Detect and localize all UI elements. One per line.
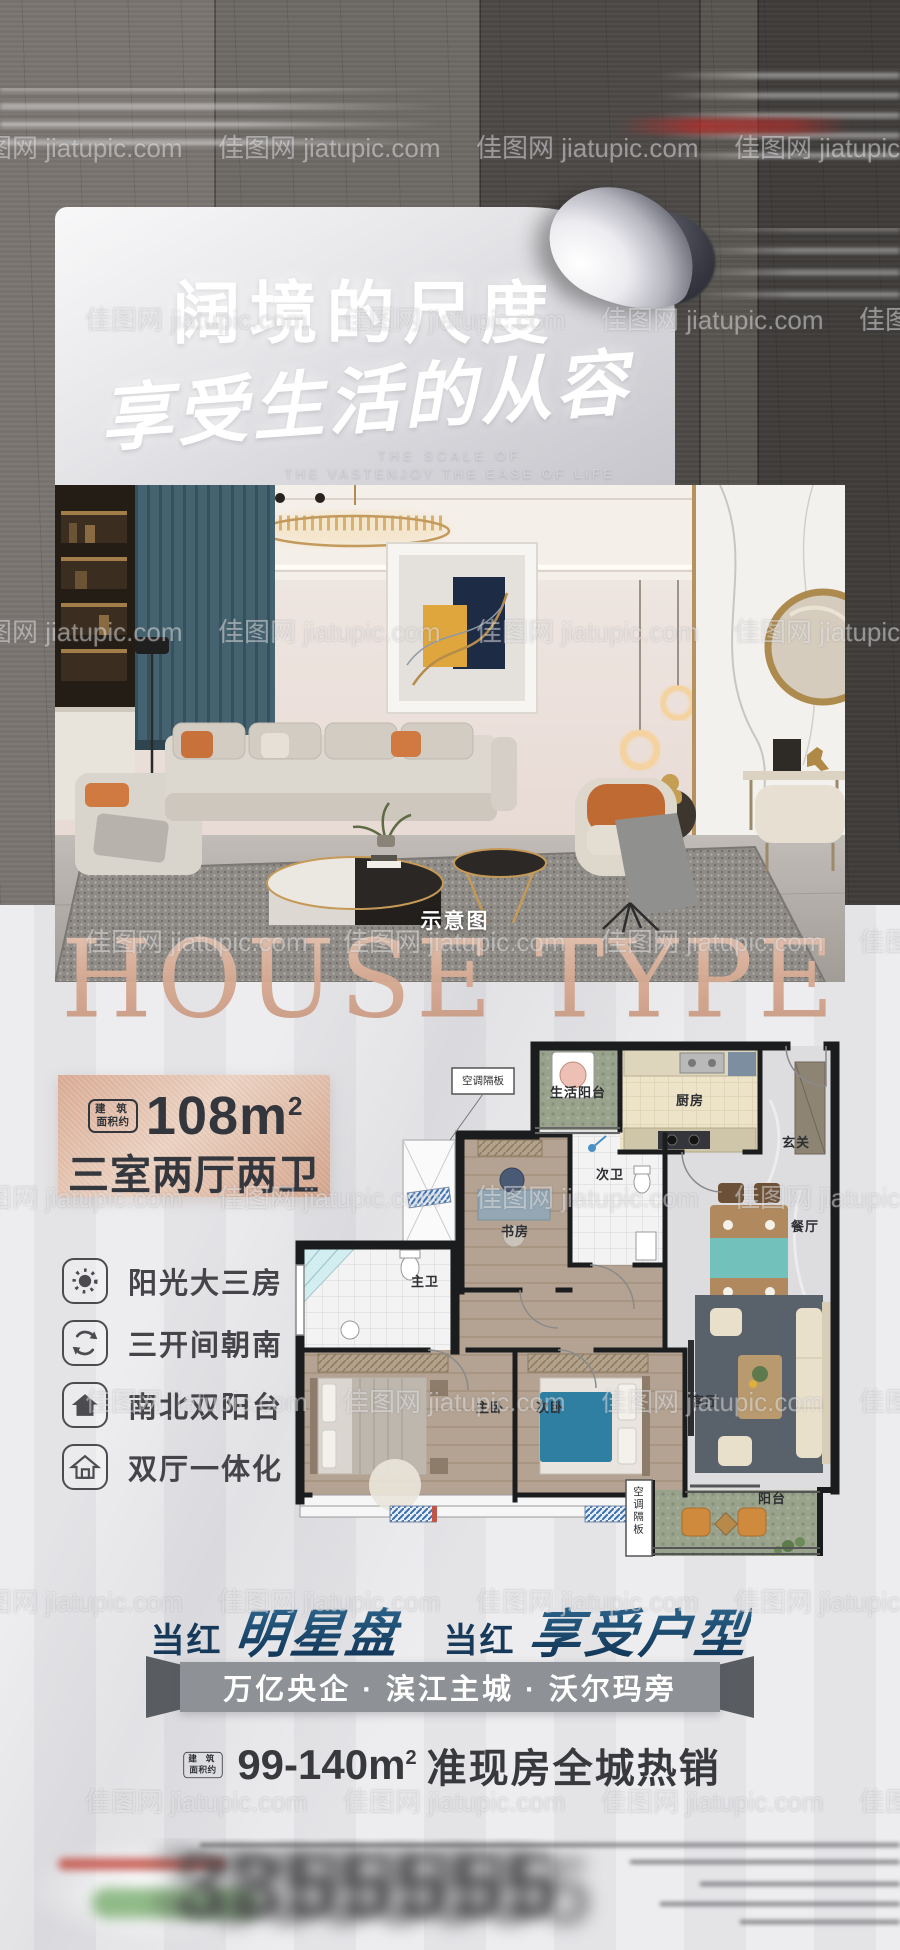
area-tag-line1: 建 筑	[95, 1103, 131, 1116]
english-subtitle: THE SCALE OF THE VASTENJOY THE EASE OF L…	[55, 449, 845, 481]
footer-streak	[200, 1843, 900, 1847]
footer-streak	[740, 1920, 900, 1924]
sales-tag-box: 建 筑 面积约	[184, 1752, 223, 1778]
english-subtitle-line1: THE SCALE OF	[55, 449, 845, 463]
feature-row-orientation: 三开间朝南	[62, 1320, 302, 1366]
feature-row-double-hall: 双厅一体化	[62, 1444, 302, 1490]
feature-label: 阳光大三房	[128, 1260, 283, 1302]
slogan-script-2: 享受户型	[526, 1592, 754, 1667]
room-label-ac-top: 空调隔板	[452, 1073, 514, 1088]
sun-icon	[62, 1258, 108, 1304]
footer-phone-number: 3355555	[175, 1838, 561, 1940]
footer-streak	[630, 1860, 900, 1864]
house-type-heading: HOUSE TYPE	[30, 916, 870, 1043]
room-label-study: 书房	[485, 1221, 545, 1240]
room-label-life-balcony: 生活阳台	[536, 1082, 620, 1101]
sales-tag-line2: 面积约	[189, 1765, 218, 1776]
room-label-second: 次卧	[520, 1397, 580, 1416]
floor-plan-drawing	[290, 1040, 840, 1560]
area-value: 108m2	[146, 1089, 304, 1143]
area-tag-line2: 面积约	[95, 1116, 131, 1129]
slogan-script-1: 明星盘	[233, 1592, 406, 1667]
sales-line: 建 筑 面积约 99-140m2 准现房全城热销	[0, 1736, 900, 1794]
room-label-ac-bottom: 空调隔板	[631, 1486, 646, 1552]
footer-streak	[700, 1882, 900, 1886]
feature-row-sunlight: 阳光大三房	[62, 1258, 302, 1304]
ribbon-banner: 万亿央企 · 滨江主城 · 沃尔玛旁	[180, 1662, 720, 1712]
english-subtitle-line2: THE VASTENJOY THE EASE OF LIFE	[55, 466, 845, 481]
blurred-footer: 3355555	[0, 1838, 900, 1950]
room-label-bath1: 主卫	[395, 1271, 455, 1290]
room-label-entry: 玄关	[768, 1132, 824, 1151]
room-label-living: 客厅	[675, 1391, 735, 1410]
house-outline-icon	[62, 1444, 108, 1490]
sales-tag-line1: 建 筑	[189, 1754, 218, 1765]
room-label-balcony: 阳台	[742, 1488, 802, 1507]
room-label-master: 主卧	[460, 1397, 520, 1416]
refresh-icon	[62, 1320, 108, 1366]
feature-row-balconies: 南北双阳台	[62, 1382, 302, 1428]
slogan-prefix-1: 当红	[150, 1613, 222, 1662]
feature-label: 三开间朝南	[128, 1322, 283, 1364]
house-filled-icon	[62, 1382, 108, 1428]
area-tag-box: 建 筑 面积约	[88, 1099, 138, 1133]
sales-range: 99-140m2	[237, 1741, 416, 1789]
slogan-prefix-2: 当红	[444, 1613, 516, 1662]
feature-label: 南北双阳台	[128, 1384, 283, 1426]
red-streak	[618, 118, 850, 134]
footer-streak	[660, 1902, 900, 1906]
floor-plan: 空调隔板 生活阳台 厨房 玄关 次卫 书房 餐厅 主卫 主卧 次卧 客厅 空调隔…	[290, 1040, 840, 1560]
room-label-bath2: 次卫	[580, 1164, 640, 1183]
feature-label: 双厅一体化	[128, 1446, 283, 1488]
room-label-dining: 餐厅	[775, 1216, 835, 1235]
sales-text: 准现房全城热销	[427, 1736, 721, 1794]
real-estate-poster: 阔境的尺度 享受生活的从容 THE SCALE OF THE VASTENJOY…	[0, 0, 900, 1950]
slogan-line: 当红 明星盘 当红 享受户型	[0, 1592, 900, 1667]
room-label-kitchen: 厨房	[658, 1090, 722, 1109]
ribbon-text: 万亿央企 · 滨江主城 · 沃尔玛旁	[223, 1666, 677, 1708]
